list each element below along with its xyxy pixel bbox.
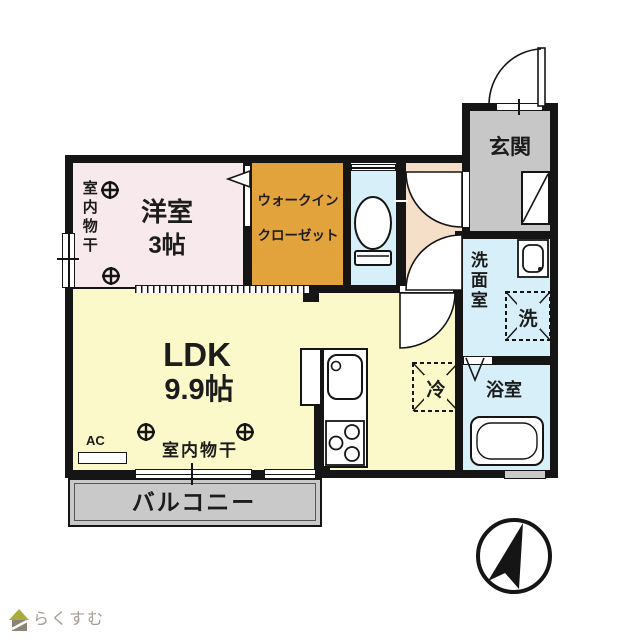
bathroom-door-opening — [464, 357, 492, 364]
wall-western-ldk-line — [73, 287, 137, 289]
room-ldk-label: LDK — [163, 338, 231, 373]
indoor-drying-label-western: 室内物干 — [81, 180, 97, 256]
ac-unit-box — [78, 452, 127, 464]
window-western-tick — [57, 258, 79, 260]
window-ldk-balcony-tick — [191, 463, 193, 485]
room-toilet — [351, 170, 396, 287]
house-logo-icon — [9, 609, 29, 631]
wall-wic-toilet — [343, 163, 351, 287]
hall-entrance-opening — [463, 172, 469, 227]
door-pocket — [245, 166, 250, 226]
ac-label: AC — [86, 434, 105, 448]
wall-entrance-washroom — [462, 231, 558, 239]
room-western-size: 3帖 — [148, 233, 185, 258]
window-toilet-line — [352, 167, 395, 169]
room-ldk-size: 9.9帖 — [164, 375, 233, 405]
room-wic-label-1: ウォークイン — [258, 194, 339, 208]
kitchen-counter — [322, 348, 368, 468]
kitchen-cabinet — [300, 348, 322, 406]
floor-plan: 洗 冷 洋室 3帖 ウォーク — [0, 0, 640, 640]
room-hallway — [406, 163, 462, 287]
shoe-cabinet — [521, 171, 550, 225]
balcony-label: バルコニー — [132, 490, 257, 514]
logo-text: らくすむ — [33, 612, 105, 629]
window-ldk-bottom-line — [265, 474, 315, 476]
window-bathroom — [504, 470, 546, 479]
room-washroom-label: 洗面室 — [468, 251, 486, 311]
room-bathroom-label: 浴室 — [486, 381, 522, 400]
wall-top — [65, 155, 470, 163]
toilet-wall-tick — [394, 200, 408, 202]
wall-right — [550, 103, 558, 478]
sliding-door-track — [135, 285, 310, 293]
room-entrance-label: 玄関 — [489, 137, 531, 159]
room-walk-in-closet — [252, 163, 343, 287]
indoor-drying-label-ldk: 室内物干 — [162, 442, 238, 460]
wall-toilet-hall — [396, 163, 406, 287]
wall-left — [65, 155, 73, 478]
window-ldk-balcony-line — [136, 474, 251, 476]
hall-washroom-opening — [456, 236, 462, 288]
window-western-line — [68, 234, 70, 287]
entrance-door-tick — [518, 99, 520, 115]
hall-ldk-opening — [400, 286, 453, 292]
entrance-door-swing-icon — [489, 48, 545, 106]
room-western-label: 洋室 — [141, 199, 193, 226]
compass-icon — [478, 520, 550, 592]
room-wic-label-2: クローゼット — [258, 229, 339, 243]
room-ldk — [73, 289, 455, 470]
